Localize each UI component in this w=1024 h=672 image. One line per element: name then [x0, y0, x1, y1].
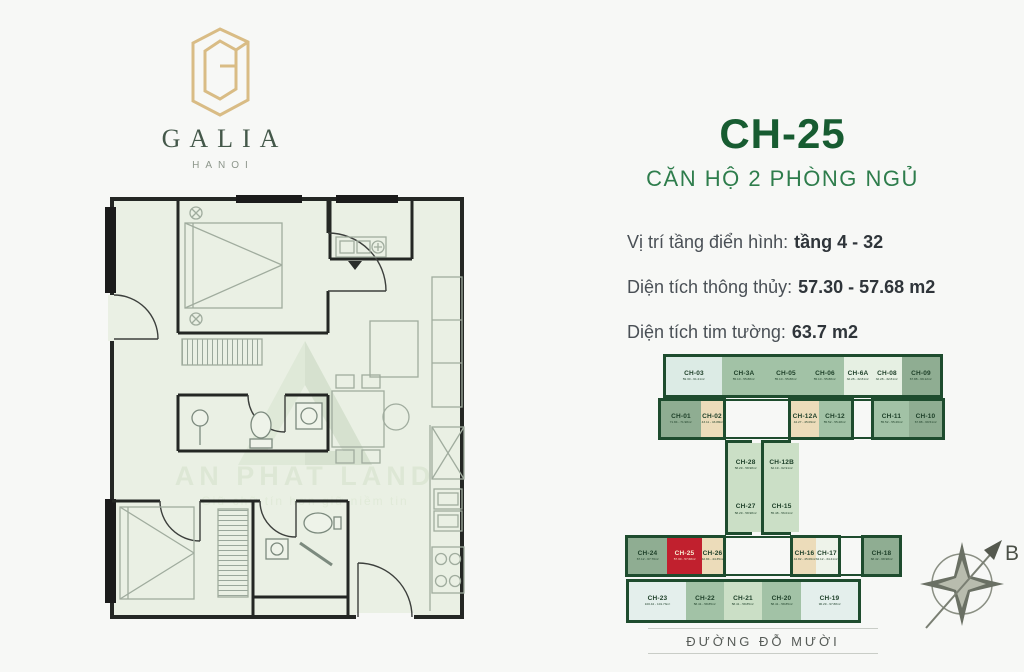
unit-area-label: 59.30 - 61.21m²	[683, 378, 705, 381]
unit-specs: Vị trí tầng điển hình:tầng 4 - 32 Diện t…	[627, 232, 1007, 367]
keyplan-unit-CH-12B[interactable]: CH-12B62.19 - 62.91m²	[764, 443, 799, 487]
keyplan-corridor-line	[726, 574, 790, 576]
keyplan-unit-CH-17[interactable]: CH-1734.12 - 34.41m²	[816, 538, 838, 574]
unit-area-label: 55.10 - 55.88m²	[814, 378, 836, 381]
logo-monogram-icon	[182, 26, 258, 118]
unit-type-subtitle: CĂN HỘ 2 PHÒNG NGỦ	[585, 166, 980, 192]
street-label-block: ĐƯỜNG ĐỖ MƯỜI	[648, 628, 878, 654]
unit-area-label: 71.84 - 71.98m²	[670, 421, 692, 424]
unit-area-label: 96.29 - 97.88m²	[819, 603, 841, 606]
unit-code-label: CH-09	[911, 370, 931, 378]
compass-north-label: B	[1005, 542, 1019, 565]
unit-code-label: CH-01	[671, 413, 691, 421]
galia-logo: GALIA HANOI	[110, 26, 330, 171]
spec-value: 57.30 - 57.68 m2	[798, 277, 935, 297]
keyplan-unit-CH-26[interactable]: CH-2642.84 - 44.35m²	[702, 538, 723, 574]
unit-area-label: 55.10 - 55.88m²	[775, 378, 797, 381]
unit-code-label: CH-08	[877, 370, 897, 378]
unit-code-label: CH-12B	[769, 459, 794, 467]
keyplan-unit-CH-25[interactable]: CH-2557.30 - 57.68m²	[667, 538, 702, 574]
keyplan-unit-CH-28[interactable]: CH-2858.29 - 58.98m²	[728, 443, 763, 487]
unit-area-label: 55.52 - 55.28m²	[824, 421, 846, 424]
unit-code-title: CH-25	[615, 110, 950, 158]
unit-area-label: 67.12 - 67.76m²	[637, 558, 659, 561]
keyplan-unit-CH-27[interactable]: CH-2758.29 - 58.98m²	[728, 487, 763, 532]
keyplan-unit-CH-02[interactable]: CH-0243.11 - 43.88m²	[701, 401, 723, 437]
unit-code-label: CH-20	[772, 595, 792, 603]
keyplan-unit-CH-19[interactable]: CH-1996.29 - 97.88m²	[801, 582, 858, 620]
unit-area-label: 44.82 - 45.06m²	[794, 558, 816, 561]
unit-code-label: CH-23	[648, 595, 668, 603]
keyplan-unit-CH-24[interactable]: CH-2467.12 - 67.76m²	[628, 538, 667, 574]
unit-code-label: CH-22	[695, 595, 715, 603]
keyplan-unit-CH-11[interactable]: CH-1155.52 - 55.26m²	[874, 401, 909, 437]
unit-area-label: 67.88 - 69.12m²	[910, 378, 932, 381]
keyplan-unit-CH-21[interactable]: CH-2158.41 - 58.85m²	[724, 582, 762, 620]
unit-code-label: CH-12	[825, 413, 845, 421]
floor-plan: AN PHAT LAND Giữ chữ tín hơn giữ niềm ti…	[100, 193, 470, 625]
keyplan-corridor-line	[841, 536, 861, 538]
unit-code-label: CH-3A	[734, 370, 755, 378]
keyplan-row4: CH-23100.42 - 101.73m²CH-2258.41 - 58.85…	[626, 579, 861, 623]
spec-line-gross-area: Diện tích tim tường:63.7 m2	[627, 322, 1007, 343]
spec-label: Diện tích thông thủy:	[627, 277, 792, 297]
keyplan-unit-CH-12A[interactable]: CH-12A44.27 - 45.09m²	[791, 401, 819, 437]
unit-area-label: 34.12 - 34.41m²	[816, 558, 838, 561]
unit-area-label: 32.28 - 32.81m²	[847, 378, 869, 381]
keyplan-corridor-line	[841, 574, 861, 576]
unit-code-label: CH-06	[815, 370, 835, 378]
unit-area-label: 55.10 - 55.88m²	[733, 378, 755, 381]
keyplan-row3-right: CH-1868.42 - 68.98m²	[861, 535, 902, 577]
unit-area-label: 55.48 - 56.01m²	[771, 512, 793, 515]
spec-value: 63.7 m2	[792, 322, 858, 342]
unit-area-label: 44.27 - 45.09m²	[794, 421, 816, 424]
keyplan-row2-mid: CH-12A44.27 - 45.09m²CH-1255.52 - 55.28m…	[788, 398, 854, 440]
unit-area-label: 58.29 - 58.98m²	[735, 467, 757, 470]
unit-code-label: CH-17	[817, 550, 837, 558]
keyplan-row3-left: CH-2467.12 - 67.76m²CH-2557.30 - 57.68m²…	[625, 535, 726, 577]
keyplan-corridor-line	[726, 536, 790, 538]
unit-area-label: 58.41 - 58.85m²	[732, 603, 754, 606]
unit-code-label: CH-25	[675, 550, 695, 558]
unit-code-label: CH-18	[872, 550, 892, 558]
keyplan-unit-CH-3A[interactable]: CH-3A55.10 - 55.88m²	[722, 357, 766, 395]
keyplan-unit-CH-03[interactable]: CH-0359.30 - 61.21m²	[666, 357, 722, 395]
unit-code-label: CH-16	[795, 550, 815, 558]
compass-rose-icon: B	[916, 518, 1020, 636]
keyplan-unit-CH-18[interactable]: CH-1868.42 - 68.98m²	[864, 538, 899, 574]
spec-label: Diện tích tim tường:	[627, 322, 786, 342]
unit-area-label: 55.52 - 55.26m²	[881, 421, 903, 424]
unit-code-label: CH-6A	[848, 370, 869, 378]
floor-plan-drawing: AN PHAT LAND Giữ chữ tín hơn giữ niềm ti…	[100, 193, 470, 625]
keyplan-unit-CH-22[interactable]: CH-2258.41 - 58.85m²	[686, 582, 724, 620]
unit-area-label: 68.42 - 68.98m²	[871, 558, 893, 561]
unit-area-label: 62.19 - 62.91m²	[771, 467, 793, 470]
compass: B	[916, 518, 1020, 641]
keyplan-unit-CH-08[interactable]: CH-0832.28 - 32.81m²	[872, 357, 902, 395]
unit-code-label: CH-26	[703, 550, 723, 558]
unit-code-label: CH-11	[882, 413, 901, 421]
unit-code-label: CH-15	[772, 503, 792, 511]
keyplan-unit-CH-10[interactable]: CH-1067.88 - 69.51m²	[909, 401, 942, 437]
unit-code-label: CH-28	[736, 459, 756, 467]
keyplan-unit-CH-01[interactable]: CH-0171.84 - 71.98m²	[661, 401, 701, 437]
spec-line-floor: Vị trí tầng điển hình:tầng 4 - 32	[627, 232, 1007, 253]
unit-code-label: CH-21	[733, 595, 753, 603]
spec-line-carpet-area: Diện tích thông thủy:57.30 - 57.68 m2	[627, 277, 1007, 298]
street-rule-bottom	[648, 653, 878, 654]
unit-area-label: 58.29 - 58.98m²	[735, 512, 757, 515]
unit-code-label: CH-24	[638, 550, 658, 558]
keyplan-corridor-line	[854, 399, 871, 401]
unit-area-label: 100.42 - 101.73m²	[645, 603, 670, 606]
keyplan-unit-CH-6A[interactable]: CH-6A32.28 - 32.81m²	[844, 357, 872, 395]
unit-code-label: CH-27	[736, 503, 756, 511]
page: { "brand": { "name": "GALIA", "city": "H…	[0, 0, 1024, 672]
keyplan-corridor-line	[726, 437, 788, 439]
unit-code-label: CH-05	[776, 370, 796, 378]
spec-label: Vị trí tầng điển hình:	[627, 232, 788, 252]
street-label: ĐƯỜNG ĐỖ MƯỜI	[648, 629, 878, 653]
keyplan-row2-left: CH-0171.84 - 71.98m²CH-0243.11 - 43.88m²	[658, 398, 726, 440]
unit-area-label: 42.84 - 44.35m²	[702, 558, 724, 561]
building-keyplan: CH-0359.30 - 61.21m²CH-3A55.10 - 55.88m²…	[613, 352, 948, 624]
unit-area-label: 58.41 - 58.85m²	[694, 603, 716, 606]
unit-area-label: 57.30 - 57.68m²	[674, 558, 696, 561]
unit-code-label: CH-12A	[793, 413, 818, 421]
keyplan-unit-CH-16[interactable]: CH-1644.82 - 45.06m²	[793, 538, 816, 574]
keyplan-unit-CH-06[interactable]: CH-0655.10 - 55.88m²	[806, 357, 844, 395]
keyplan-unit-CH-09[interactable]: CH-0967.88 - 69.12m²	[902, 357, 940, 395]
unit-area-label: 58.41 - 58.85m²	[771, 603, 793, 606]
keyplan-core-right: CH-12B62.19 - 62.91m²CH-1555.48 - 56.01m…	[761, 440, 791, 535]
keyplan-row2-right: CH-1155.52 - 55.26m²CH-1067.88 - 69.51m²	[871, 398, 945, 440]
keyplan-unit-CH-05[interactable]: CH-0555.10 - 55.88m²	[766, 357, 806, 395]
brand-name: GALIA	[110, 124, 330, 154]
keyplan-unit-CH-20[interactable]: CH-2058.41 - 58.85m²	[762, 582, 801, 620]
keyplan-row3-mid: CH-1644.82 - 45.06m²CH-1734.12 - 34.41m²	[790, 535, 841, 577]
keyplan-corridor-line	[854, 437, 871, 439]
unit-area-label: 67.88 - 69.51m²	[915, 421, 937, 424]
unit-code-label: CH-02	[702, 413, 722, 421]
keyplan-unit-CH-12[interactable]: CH-1255.52 - 55.28m²	[819, 401, 851, 437]
unit-code-label: CH-03	[684, 370, 704, 378]
spec-value: tầng 4 - 32	[794, 232, 883, 252]
keyplan-unit-CH-15[interactable]: CH-1555.48 - 56.01m²	[764, 487, 799, 532]
unit-area-label: 43.11 - 43.88m²	[701, 421, 723, 424]
unit-code-label: CH-19	[820, 595, 840, 603]
keyplan-corridor-line	[726, 399, 788, 401]
watermark-text: AN PHAT LAND	[175, 461, 435, 491]
unit-area-label: 32.28 - 32.81m²	[876, 378, 898, 381]
keyplan-core-left: CH-2858.29 - 58.98m²CH-2758.29 - 58.98m²	[725, 440, 752, 535]
keyplan-top-row: CH-0359.30 - 61.21m²CH-3A55.10 - 55.88m²…	[663, 354, 943, 398]
keyplan-unit-CH-23[interactable]: CH-23100.42 - 101.73m²	[629, 582, 686, 620]
brand-city: HANOI	[110, 160, 330, 171]
unit-code-label: CH-10	[916, 413, 936, 421]
